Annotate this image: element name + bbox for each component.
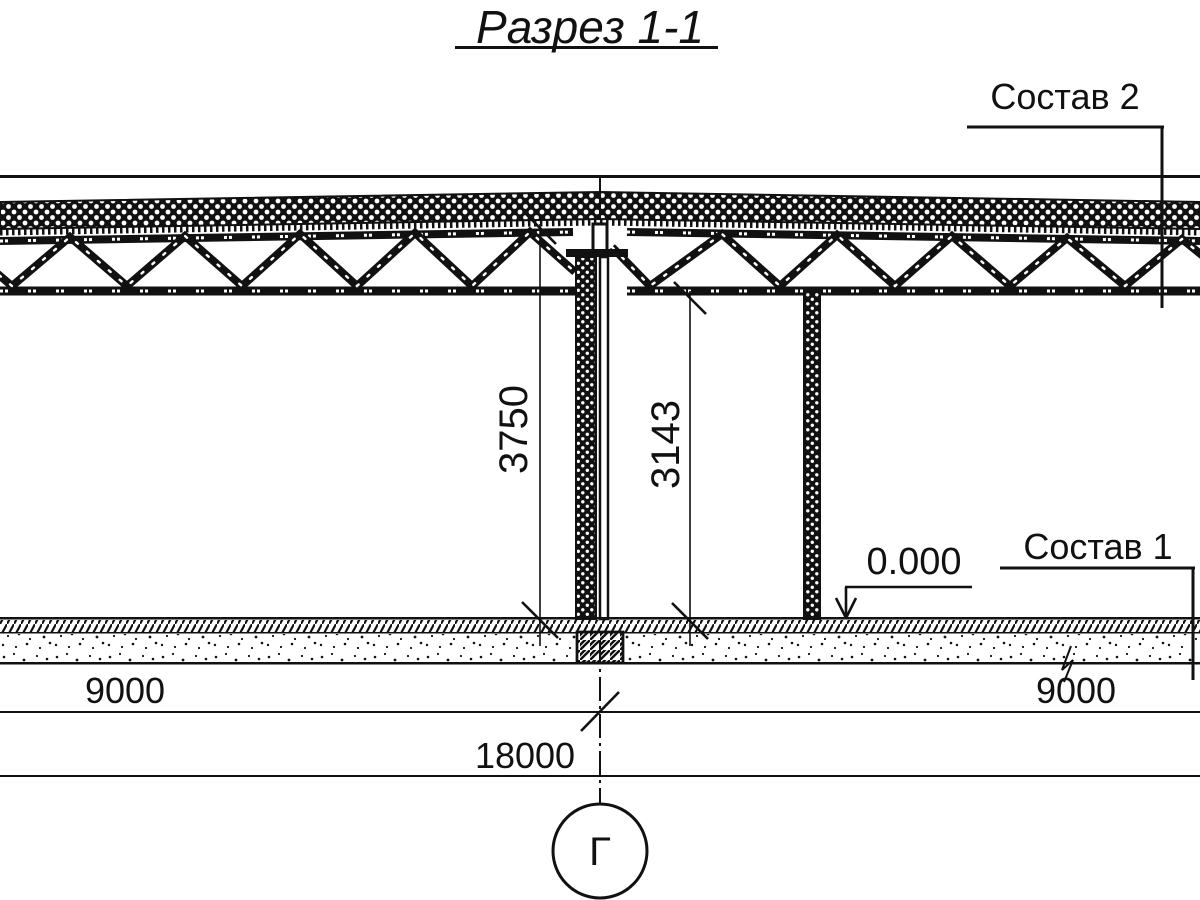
column-central	[576, 257, 596, 619]
dimension-3143: 3143	[644, 360, 689, 530]
roof-truss-left	[0, 232, 575, 291]
dimension-18000: 18000	[450, 735, 600, 777]
dimension-line-18000	[0, 775, 1200, 777]
label-floor-composition: Состав 1	[1002, 526, 1194, 568]
column-right	[804, 292, 820, 619]
drawing-title: Разрез 1-1	[420, 0, 760, 54]
drawing-linework	[0, 0, 1200, 900]
column-secondary	[600, 257, 608, 619]
label-roof-composition: Состав 2	[960, 76, 1170, 118]
elevation-mark-graphic	[836, 587, 972, 618]
column-cap-plate	[566, 249, 628, 257]
dimension-9000-left: 9000	[60, 670, 190, 712]
roof-truss-right	[612, 232, 1200, 291]
axis-marker-letter: Г	[575, 827, 625, 877]
floor-screed-hatch	[0, 620, 1200, 632]
section-drawing: Разрез 1-1 Состав 2 Состав 1 0.000 3750 …	[0, 0, 1200, 900]
dimension-9000-right: 9000	[1011, 670, 1141, 712]
floor-top-line	[0, 617, 1200, 620]
dimension-3750: 3750	[492, 345, 537, 515]
label-elevation: 0.000	[850, 541, 978, 584]
roof-top-edge-line	[0, 175, 1200, 178]
ridge-post	[593, 224, 607, 251]
